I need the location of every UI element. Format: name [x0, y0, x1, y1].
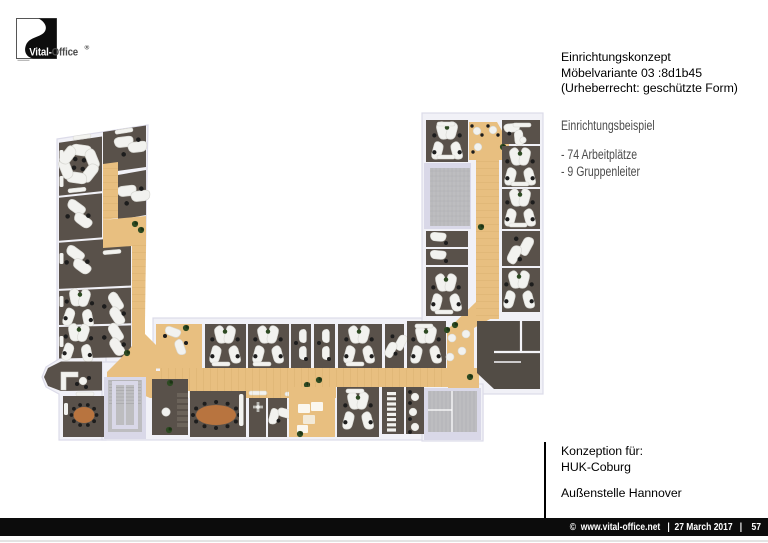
svg-text:®: ®: [85, 44, 90, 52]
svg-text:Vital-Office: Vital-Office: [29, 47, 78, 59]
